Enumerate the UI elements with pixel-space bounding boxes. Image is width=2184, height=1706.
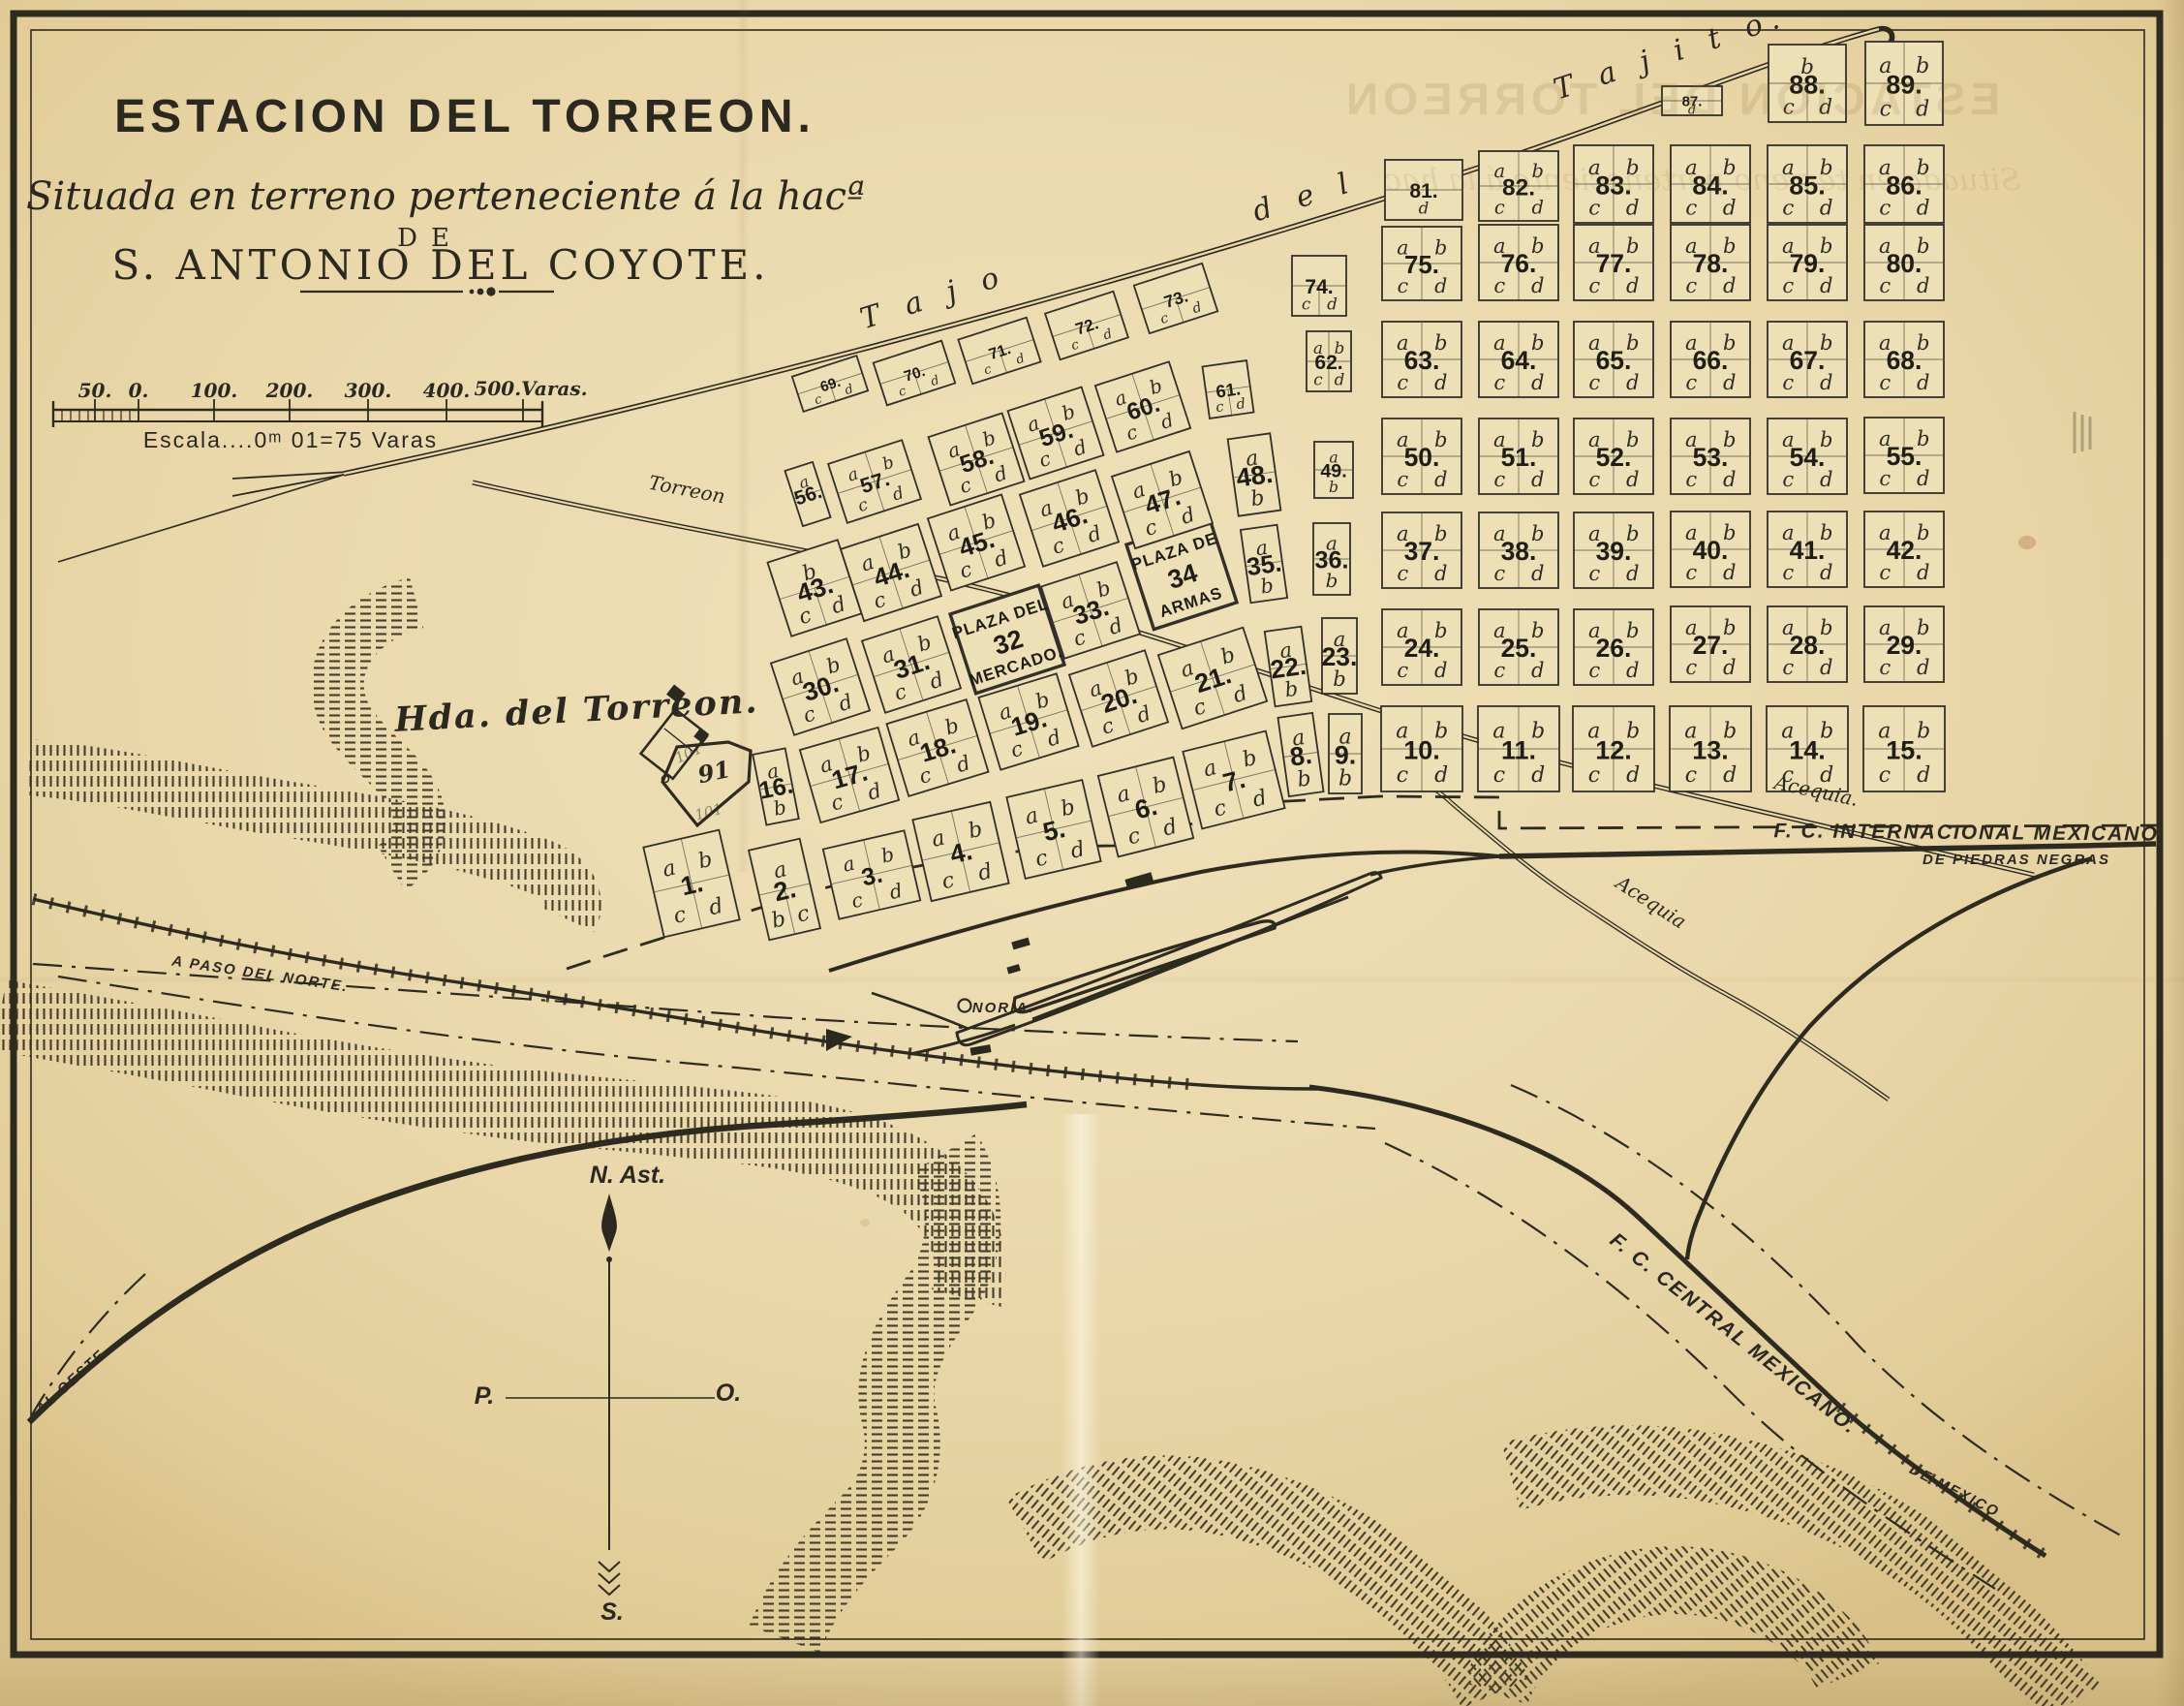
map-label-subtitle: Situada en terreno perteneciente á la ha… [26,174,865,219]
quad-letter: c [1397,763,1408,788]
city-block: abcd68. [1864,322,1944,397]
city-block: abcd58. [929,413,1025,505]
city-block: abcd40. [1671,512,1750,587]
city-block: abcd3. [823,830,920,918]
block-number: 41. [1790,536,1826,565]
map-label-tajo: T a j o [856,259,1011,337]
compass-north-arrowhead [601,1194,617,1252]
city-block: abcd38. [1479,512,1558,588]
map-label-line1: ESTACION DEL TORREON [1341,74,2000,124]
city-block: abcd30. [771,638,870,735]
acequia-branch [1400,765,1889,1100]
block-number: 29. [1887,631,1923,660]
noria-well-icon [959,1000,971,1012]
railway-wye-east-leg [1687,858,2092,1259]
city-block: abcd20. [1069,650,1168,747]
block-number: 75. [1404,252,1439,279]
map-label-4: 300. [345,379,392,402]
city-block: cd70. [874,341,956,406]
fold-marks [2075,412,2090,453]
block-number: 13. [1692,735,1729,764]
city-block: abcd60. [1095,361,1190,451]
city-block: abcd50. [1382,419,1461,494]
block-number: 39. [1596,537,1632,566]
block-number: 77. [1596,249,1632,278]
city-block: ab8. [1277,713,1323,796]
city-block: abcd24. [1382,609,1461,685]
map-label-noria: NORIA. [972,1000,1035,1016]
block-number: 35. [1246,549,1283,581]
city-block: abcd28. [1768,606,1847,682]
city-block: ab22. [1265,627,1311,707]
city-block: abcd77. [1574,225,1653,300]
map-label-pent_label: 91 [695,755,733,789]
city-block: abcd75. [1382,227,1461,300]
block-number: 76. [1501,249,1537,278]
map-label-1: 0. [129,379,149,402]
block-number: 53. [1693,443,1729,472]
city-block: ab48. [1228,433,1281,515]
city-block: abcd11. [1478,706,1559,791]
block-number: 52. [1596,443,1632,472]
block-number: 11. [1501,735,1536,764]
quad-letter: d [1917,197,1930,221]
map-label-del: d e l [1248,165,1361,230]
map-label-6: 500.Varas. [474,377,587,400]
map-label-west: P. [475,1382,494,1410]
city-block: abcd5. [1006,780,1100,879]
quad-letter: d [1531,763,1545,788]
block-number: 26. [1596,634,1632,663]
city-block: abcd29. [1864,606,1944,682]
city-block: ab49. [1314,442,1353,498]
map-label-annot1: 101 [693,800,724,824]
city-block: abcd46. [1020,470,1119,567]
city-block: ab23. [1322,618,1358,694]
quad-letter: c [1782,197,1794,221]
city-block: abcd4. [912,802,1008,901]
block-number: 42. [1887,536,1923,565]
block-number: 36. [1315,547,1349,574]
city-block: abcd57. [828,440,921,523]
block-number: 23. [1322,642,1358,671]
city-block: abcd25. [1479,609,1558,685]
quad-letter: d [1820,197,1833,221]
quad-letter: c [1685,197,1697,221]
block-number: 12. [1595,735,1632,764]
terrain-hachure-compass-east-mass [784,1153,963,1639]
map-label-acequia2: Acequia [1610,870,1690,934]
map-label-north: N. Ast. [590,1162,665,1189]
city-block: abcd63. [1382,322,1461,397]
block-number: 61. [1215,378,1242,401]
block-number: 80. [1887,249,1923,278]
block-number: 28. [1790,631,1826,660]
city-block: abcd79. [1768,225,1847,300]
city-block: abcd13. [1670,706,1751,791]
city-block: cd72. [1045,292,1128,359]
city-block: cd73. [1134,264,1217,333]
block-number: 64. [1501,346,1537,375]
block-number: 63. [1404,346,1440,375]
map-label-east: O. [716,1380,741,1407]
terrain-hachure-south-bluffs [0,1015,970,1298]
compass-fletching [599,1562,620,1595]
block-number: 50. [1404,443,1440,472]
terrain-hachure-bottom-center [1025,1492,1495,1693]
city-block: abcd52. [1574,419,1653,494]
city-block: abcd65. [1574,322,1653,397]
block-number: 65. [1596,346,1632,375]
city-block: abcd18. [886,699,988,796]
map-canvas: abcd1.abc2.abcd3.abcd4.abcd5.abcd6.abcd7… [0,0,2184,1706]
city-block: abcd53. [1671,419,1750,494]
block-number: 24. [1404,634,1440,663]
scale-bar [53,399,542,427]
city-block: abcd1. [643,830,739,938]
city-block: ab35. [1241,525,1287,604]
quad-letter: c [1588,763,1600,788]
block-number: 8. [1288,740,1313,772]
city-block: abcd37. [1382,512,1461,588]
city-block: ab36. [1313,523,1350,595]
map-label-title: ESTACION DEL TORREON. [114,91,815,142]
city-block: abcd62. [1307,331,1351,391]
quad-letter: c [1879,763,1891,788]
quad-letter: c [1685,763,1697,788]
block-number: 74. [1305,276,1333,298]
city-block: abcd17. [800,728,899,822]
map-sheet: abcd1.abc2.abcd3.abcd4.abcd5.abcd6.abcd7… [0,0,2184,1706]
map-label-central: F. C. CENTRAL MEXICANO. [1606,1228,1862,1439]
block-number: 10. [1403,735,1440,764]
city-block: abcd54. [1768,419,1847,494]
block-number: 48. [1234,459,1274,493]
city-block: abcd12. [1573,706,1654,791]
city-block: abcd59. [1008,387,1104,479]
city-block: abcd39. [1574,512,1653,588]
city-block: abcd6. [1098,758,1193,857]
city-block: cd74. [1292,256,1346,316]
block-number: 54. [1790,443,1826,472]
city-block: abcd26. [1574,609,1653,685]
map-label-2: 100. [191,379,238,402]
block-number: 51. [1501,443,1537,472]
block-number: 66. [1693,346,1729,375]
city-block: abcd55. [1864,418,1944,493]
quad-letter: d [1723,197,1737,221]
map-label-3: 200. [265,379,314,402]
map-label-torreon_road: Torreon [647,471,727,509]
map-label-internacional: F. C. INTERNACIONAL MEXICANO. [1773,820,2166,846]
block-number: 78. [1693,249,1729,278]
block-number: 27. [1693,631,1729,660]
city-block: cd61. [1202,360,1253,419]
city-block: a56. [784,462,830,526]
block-number: 9. [1335,740,1357,769]
map-label-5: 400. [423,379,471,402]
city-block: abcd80. [1864,225,1944,300]
terrain-hachure-bottom-center-2 [1495,1580,1848,1693]
city-block: abcd64. [1479,322,1558,397]
map-label-line2: Situada en terreno perteneciente á la ha… [1385,163,2020,198]
city-block: abcd7. [1183,731,1284,829]
map-label-internacional_sub: DE PIEDRAS NEGRAS [1923,852,2110,868]
city-block: abcd27. [1671,606,1750,682]
block-number: 62. [1314,352,1342,374]
block-number: 38. [1501,537,1537,566]
block-number: 40. [1693,536,1729,565]
city-block: cd71. [958,318,1040,385]
quad-letter: d [1626,197,1640,221]
map-label-owner: S. ANTONIO DEL COYOTE. [112,241,770,289]
map-label-0: 50. [78,379,112,402]
block-number: 15. [1886,735,1923,764]
quad-letter: d [1626,763,1640,788]
block-number: 25. [1501,634,1537,663]
city-block: abcd45. [928,495,1025,591]
map-label-caption: Escala....0ᵐ 01=75 Varas [143,427,438,452]
compass-rose [506,1194,715,1595]
terrain-hachure-northwest-bank [29,767,573,920]
quad-letter: d [1917,763,1930,788]
city-block: abcd76. [1479,225,1558,300]
city-block: abcd10. [1381,706,1462,791]
city-block: abcd51. [1479,419,1558,494]
block-number: 55. [1887,442,1923,471]
city-block: ab9. [1329,714,1362,793]
terrain-layer [0,603,2071,1703]
quad-letter: d [1723,763,1737,788]
city-block: abcd31. [862,616,961,713]
block-number: 22. [1269,651,1308,685]
city-block: ab16. [753,748,799,824]
quad-letter: d [1434,763,1448,788]
block-number: 37. [1404,537,1440,566]
city-block: abcd66. [1671,322,1750,397]
map-label-south: S. [600,1598,624,1626]
city-block: abcd67. [1768,322,1847,397]
city-block: abcd78. [1671,225,1750,300]
block-number: 49. [1320,460,1346,481]
city-block: abcd41. [1768,512,1847,587]
map-label-central_sub: DE MEXICO [1907,1461,2003,1521]
city-block: abcd42. [1864,512,1944,587]
block-number: 68. [1887,346,1923,375]
city-block: abc2. [749,839,820,941]
block-number: 67. [1790,346,1826,375]
city-block: abcd15. [1863,706,1945,791]
block-number: 14. [1789,735,1826,764]
block-number: 79. [1790,249,1826,278]
quad-letter: b [1338,766,1352,791]
quad-letter: c [1879,197,1891,221]
quad-letter: c [1588,197,1600,221]
quad-letter: c [1493,763,1505,788]
